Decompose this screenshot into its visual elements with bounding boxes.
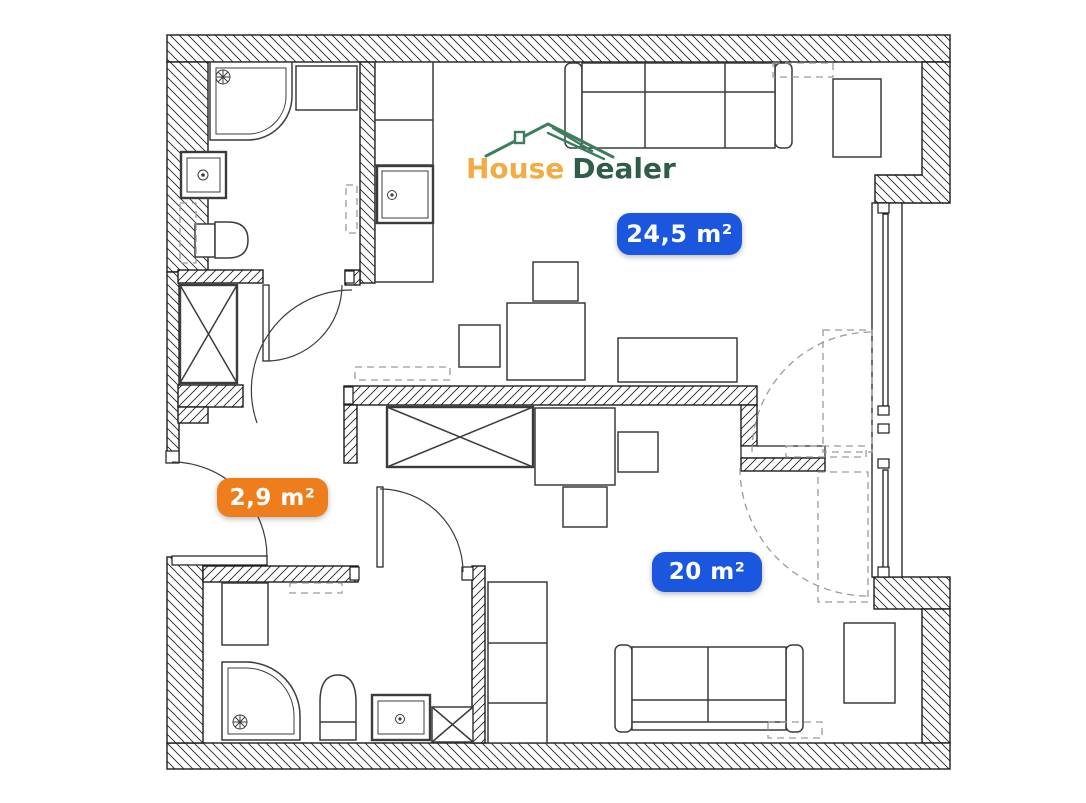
armchair-icon: [844, 623, 895, 703]
chair-icon: [563, 487, 607, 527]
corner-shower-icon: [210, 62, 292, 140]
bathroom-bottom: [222, 583, 473, 742]
toilet-tank: [195, 224, 215, 257]
area-badge-hallway: 2,9 m²: [217, 478, 328, 517]
chair-icon: [533, 262, 578, 301]
shower-head-icon: [216, 70, 230, 84]
window-handle-icon: [878, 203, 889, 213]
sofa-icon: [632, 647, 786, 730]
window-handle-icon: [878, 406, 889, 415]
shower-head-icon: [233, 715, 247, 729]
door-jamb: [462, 567, 473, 580]
desk-icon: [535, 408, 615, 485]
door-swing: [380, 489, 463, 572]
window-wall: [740, 203, 902, 602]
armchair-icon: [833, 79, 881, 157]
door-leaf: [377, 487, 383, 567]
door-leaf: [263, 285, 269, 361]
toilet-icon: [215, 222, 248, 258]
window-glazing: [883, 214, 888, 406]
area-badge-bedroom: 20 m²: [652, 552, 762, 592]
cabinet-icon: [488, 582, 547, 743]
brand-name: HouseDealer: [466, 152, 676, 185]
radiator-dashed: [355, 367, 450, 380]
chair-icon: [459, 325, 500, 367]
hallway: [172, 285, 352, 565]
door-jamb: [166, 451, 179, 463]
balcony-door-leaf: [823, 330, 872, 452]
floor-plan-page: HouseDealer 24,5 m² 2,9 m² 20 m²: [0, 0, 1086, 803]
washing-machine-icon: [222, 583, 268, 645]
washbasin-icon: [372, 695, 430, 740]
radiator-dashed: [346, 185, 357, 233]
entrance-door-leaf: [172, 556, 267, 565]
balcony-door-swing: [752, 332, 872, 452]
washing-machine-icon: [296, 66, 357, 110]
brand-word-house: House: [466, 152, 564, 185]
door-jamb: [350, 567, 359, 580]
sofa-armrest: [775, 63, 792, 148]
balcony-door-leaf: [818, 472, 868, 602]
window-handle-icon: [878, 424, 889, 433]
radiator-dashed: [290, 583, 342, 593]
chair-icon: [618, 432, 658, 472]
brand-logo: HouseDealer: [460, 116, 720, 182]
area-badge-living-room: 24,5 m²: [617, 213, 742, 255]
corner-shower-icon: [222, 662, 300, 740]
window-handle-icon: [878, 459, 889, 468]
brand-word-dealer: Dealer: [572, 152, 676, 185]
sofa-armrest: [615, 645, 632, 732]
sideboard-icon: [618, 338, 737, 382]
window-glazing: [883, 470, 888, 568]
door-jamb: [345, 271, 354, 283]
toilet-icon: [320, 675, 356, 740]
sofa-armrest: [786, 645, 803, 732]
table-icon: [507, 303, 585, 380]
kitchen: [346, 62, 433, 282]
door-jamb: [344, 387, 353, 404]
kitchen-sink-icon: [377, 166, 433, 223]
window-handle-icon: [878, 567, 889, 577]
